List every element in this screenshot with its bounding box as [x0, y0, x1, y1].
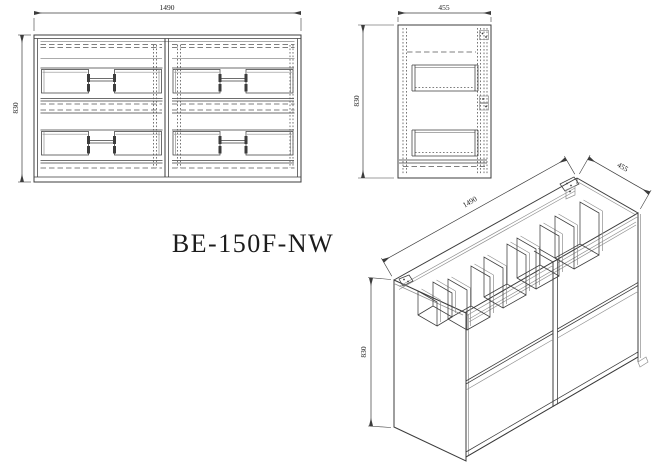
side-view-cabinet [398, 25, 491, 178]
iso-height-label: 830 [359, 346, 368, 358]
side-width-label: 455 [438, 3, 450, 12]
iso-front-face [466, 213, 638, 457]
front-right-module [172, 45, 295, 169]
iso-depth-dimension: 455 [579, 155, 651, 209]
drawer-box [172, 68, 294, 101]
drawer-box [172, 130, 294, 163]
isometric-view: 1490 455 830 [359, 155, 651, 461]
drawer-box [41, 130, 163, 163]
iso-height-dimension: 830 [359, 278, 391, 428]
iso-cabinet [394, 177, 648, 461]
side-height-dimension: 830 [352, 25, 394, 178]
side-upper-drawer [412, 65, 478, 91]
mounting-bracket-right [560, 177, 579, 199]
front-view-cabinet [34, 35, 301, 182]
side-height-label: 830 [352, 95, 361, 107]
drawer-box [41, 68, 163, 101]
iso-internal-dividers [418, 200, 603, 330]
front-height-label: 830 [11, 102, 20, 114]
iso-left-drawer-gap [466, 331, 553, 391]
front-width-dimension: 1490 [34, 3, 301, 31]
front-width-label: 1490 [160, 3, 175, 12]
technical-drawing-canvas: 1490 830 [0, 0, 670, 473]
mounting-bracket-left [399, 275, 413, 286]
drawing-sheet: 1490 830 [0, 0, 670, 473]
front-left-module [41, 45, 163, 169]
iso-depth-label: 455 [616, 160, 630, 174]
iso-length-label: 1490 [461, 194, 479, 209]
side-view: 455 830 [352, 3, 491, 178]
product-code: BE-150F-NW [172, 229, 334, 258]
side-width-dimension: 455 [398, 3, 491, 22]
front-view: 1490 830 [11, 3, 301, 182]
front-height-dimension: 830 [11, 35, 31, 182]
side-lower-drawer [412, 130, 478, 156]
iso-right-drawer-gap [558, 283, 639, 339]
